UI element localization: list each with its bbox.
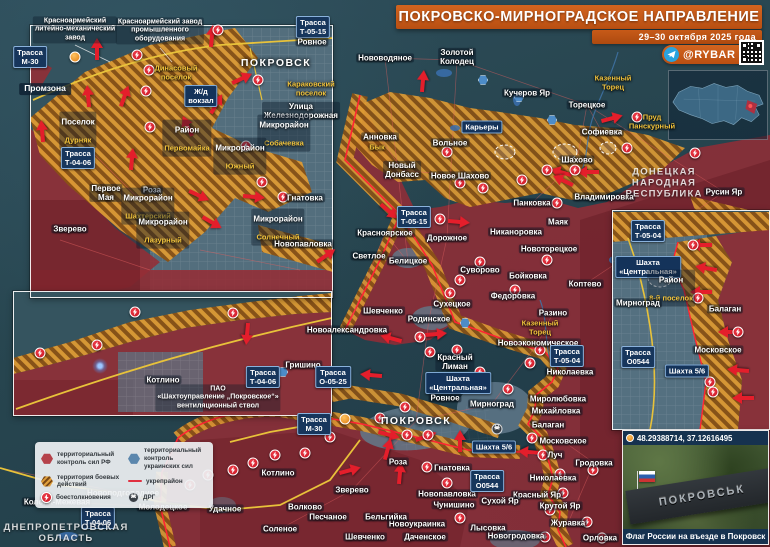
legend-hexred-icon	[41, 453, 53, 464]
legend-item-label: боестолкновения	[56, 494, 111, 502]
clash-icon	[35, 348, 46, 359]
map-label-town: Светлое	[350, 251, 387, 260]
legend-hatch-icon	[41, 476, 53, 487]
map-label-town: Коптево	[567, 279, 604, 288]
clash-icon	[402, 430, 413, 441]
map-label-town: Красный Яр	[511, 490, 563, 499]
coordinates: 48.29388714, 37.12616495	[637, 434, 732, 443]
ua-control-icon	[278, 367, 288, 377]
map-label-town: Нововодяное	[356, 53, 414, 62]
clash-icon	[597, 533, 608, 544]
clash-icon	[241, 141, 252, 152]
legend-item-label: ДРГ	[143, 494, 155, 502]
clash-icon	[423, 430, 434, 441]
clash-icon	[558, 488, 569, 499]
clash-icon	[622, 143, 633, 154]
clash-icon	[132, 50, 143, 61]
legend-item-label: территориальный контроль сил РФ	[57, 451, 120, 467]
map-label-town: Новопавловка	[272, 239, 334, 248]
strike-glow-icon	[92, 358, 108, 374]
coords-bar: 48.29388714, 37.12616495	[623, 431, 768, 445]
map-label-town: Зверево	[51, 224, 88, 233]
map-label-town: Новоукраинка	[387, 519, 447, 528]
legend-item: территория боевых действий	[41, 474, 120, 490]
map-label-town: Даченское	[402, 532, 448, 541]
map-label-town: Родинское	[406, 314, 452, 323]
map-label-town: Балаган	[530, 420, 566, 429]
clash-icon	[552, 198, 563, 209]
map-label-town: Михайловка	[530, 406, 583, 415]
clash-icon	[688, 240, 699, 251]
map-label-water: Казенный Торец	[595, 74, 632, 91]
clash-icon	[555, 469, 566, 480]
clash-icon	[690, 148, 701, 159]
attack-arrow	[243, 190, 268, 204]
clash-icon	[442, 478, 453, 489]
map-label-town: Новогродовка	[486, 531, 547, 540]
photo-inset: 48.29388714, 37.12616495 ПОКРОВСЬК Флаг …	[622, 430, 769, 545]
legend-item: ☠ДРГ	[128, 492, 207, 503]
clash-icon	[570, 165, 581, 176]
legend-item-label: укрепрайон	[146, 478, 183, 486]
attack-arrow	[125, 146, 139, 171]
map-label-badge: Карьеры	[461, 121, 502, 134]
map-label-town: Шевченко	[343, 532, 387, 541]
attack-arrow	[416, 68, 430, 93]
attack-arrow	[393, 460, 407, 485]
map-label-town: Лысовка	[468, 523, 507, 532]
clash-icon	[525, 358, 536, 369]
attack-arrow	[454, 428, 466, 452]
map-title-banner: ПОКРОВСКО-МИРНОГРАДСКОЕ НАПРАВЛЕНИЕ	[396, 5, 762, 29]
attack-arrow	[600, 109, 626, 127]
legend-clash-icon	[41, 492, 52, 503]
clash-icon	[582, 517, 593, 528]
clash-icon	[375, 413, 386, 424]
map-label-region: ДНЕПРОПЕТРОВСКАЯ ОБЛАСТЬ	[3, 523, 128, 545]
clash-icon	[213, 25, 224, 36]
map-label-town: Ровное	[295, 37, 328, 46]
attack-arrow	[176, 112, 197, 139]
clash-icon	[248, 458, 259, 469]
map-label-badge: Шахта «Центральная»	[615, 256, 681, 278]
map-label-plant: ПАО «Шахтоуправление „Покровское“» венти…	[155, 384, 280, 411]
attack-arrow	[377, 200, 403, 225]
clash-icon	[300, 448, 311, 459]
map-label-town: Софиевка	[580, 127, 624, 136]
map-label-district: МикрорайонЛазурный	[136, 212, 189, 249]
clash-icon	[400, 402, 411, 413]
map-label-town: Мирноград	[468, 399, 516, 408]
map-label-town: Разино	[537, 308, 569, 317]
clash-icon	[588, 465, 599, 476]
clash-icon	[542, 255, 553, 266]
clash-icon	[478, 183, 489, 194]
railway-station-icon	[187, 91, 199, 103]
rybar-badge[interactable]: @RYBAR	[662, 45, 743, 64]
clash-icon	[475, 257, 486, 268]
clash-icon	[422, 462, 433, 473]
clash-icon	[733, 327, 744, 338]
attack-arrow	[115, 82, 134, 109]
map-label-town: Бойковка	[507, 271, 549, 280]
map-label-town: Соленое	[261, 524, 299, 533]
clash-icon	[452, 345, 463, 356]
map-label-town: Кучеров Яр	[502, 88, 552, 97]
map-label-town: Чунишино	[431, 500, 476, 509]
map-label-road: Трасса Т-05-04	[631, 220, 665, 242]
attack-arrow	[725, 363, 750, 377]
map-label-badge: Шахта 5/6	[665, 365, 709, 378]
legend-item: территориальный контроль сил РФ	[41, 447, 120, 471]
legend-item: боестолкновения	[41, 492, 120, 503]
map-label-town: Московское	[692, 345, 743, 354]
clash-icon	[325, 432, 336, 443]
ua-control-icon	[460, 318, 470, 328]
clash-icon	[278, 192, 289, 203]
map-label-town: Роза	[141, 185, 163, 194]
clash-icon	[542, 165, 553, 176]
map-label-town: Русин Яр	[704, 187, 745, 196]
map-label-town: Красный Лиман	[435, 353, 474, 371]
map-label-road: Трасса О0544	[470, 470, 504, 492]
map-label-town: Никаноровка	[488, 227, 544, 236]
attack-arrow	[358, 368, 383, 382]
map-label-town: Золотой Колодец	[438, 48, 476, 66]
clash-icon	[517, 175, 528, 186]
city-sign-text: ПОКРОВСЬК	[658, 483, 746, 508]
photo: ПОКРОВСЬК	[623, 445, 768, 529]
attack-arrow	[187, 185, 214, 206]
clash-icon	[535, 345, 546, 356]
clash-icon	[503, 384, 514, 395]
attack-arrow	[377, 329, 403, 347]
attack-arrow	[91, 36, 103, 60]
attack-arrow	[730, 392, 754, 404]
clash-icon	[23, 48, 34, 59]
photo-caption: Флаг России на въезде в Покровск	[626, 532, 766, 541]
clash-icon	[475, 367, 486, 378]
map-label-town: Вольное	[431, 138, 470, 147]
ua-control-icon	[547, 115, 557, 125]
russian-flag	[639, 471, 655, 482]
map-label-road: Трасса Т-04-06	[246, 366, 280, 388]
map-legend: территориальный контроль сил РФтерритори…	[35, 442, 213, 508]
map-label-town: Ровное	[428, 393, 461, 402]
geo-pin-icon	[626, 434, 634, 442]
attack-arrow	[206, 90, 228, 117]
map-title: ПОКРОВСКО-МИРНОГРАДСКОЕ НАПРАВЛЕНИЕ	[399, 9, 760, 25]
clash-icon	[425, 347, 436, 358]
map-label-city: ПОКРОВСК	[381, 415, 451, 427]
map-label-town: Торецкое	[567, 100, 608, 109]
map-label-town: Новопавловка	[416, 489, 478, 498]
clash-icon	[257, 177, 268, 188]
clash-icon	[455, 513, 466, 524]
clash-icon	[145, 122, 156, 133]
map-label-town: Шевченко	[361, 306, 405, 315]
map-label-town: Сухецкое	[431, 299, 472, 308]
clash-icon	[510, 285, 521, 296]
clash-icon	[144, 65, 155, 76]
clash-icon	[527, 433, 538, 444]
map-label-town: Гнатовка	[432, 463, 472, 472]
map-label-town: Панковка	[511, 198, 552, 207]
map-label-water: Бык	[369, 144, 385, 153]
ua-control-icon	[514, 92, 524, 102]
qr-code	[739, 40, 764, 65]
map-label-plant: Красноармейский завод промышленного обор…	[116, 17, 204, 44]
attack-arrow	[81, 83, 95, 108]
marker-pin-icon	[340, 414, 351, 425]
attack-arrow	[338, 461, 364, 479]
map-label-district: МикрорайонСолнечный	[251, 209, 304, 246]
map-label-road: Трасса Т-04-06	[61, 147, 95, 169]
clash-icon	[632, 112, 643, 123]
clash-icon	[141, 86, 152, 97]
legend-lred-icon	[128, 480, 142, 482]
rybar-handle: @RYBAR	[683, 49, 735, 61]
clash-icon	[540, 532, 551, 543]
attack-arrow	[314, 243, 341, 267]
map-label-town: Белицкое	[387, 256, 429, 265]
clash-icon	[435, 214, 446, 225]
map-label-town: Московское	[537, 436, 588, 445]
clash-icon	[92, 340, 103, 351]
legend-item-label: территориальный контроль украинских сил	[144, 447, 207, 471]
clash-icon	[228, 465, 239, 476]
map-label-town: Гнатовка	[285, 193, 325, 202]
map-label-town: Николаевка	[545, 367, 596, 376]
attack-arrow	[516, 445, 541, 459]
map-label-road: Трасса О0544	[621, 346, 655, 368]
map-label-town: Котлино	[259, 468, 296, 477]
map-label-town: Миролюбовка	[528, 394, 588, 403]
attack-arrow	[448, 215, 473, 229]
map-date-banner: 29–30 октября 2025 года	[592, 30, 762, 44]
map-label-road: Трасса Т-05-04	[550, 345, 584, 367]
clash-icon	[455, 178, 466, 189]
map-label-district: ПоселокДурняк	[59, 112, 96, 149]
map-label-town: Песчаное	[307, 512, 349, 521]
clash-icon	[693, 293, 704, 304]
map-label-town: Зверево	[333, 485, 370, 494]
map-label-road: Трасса Т-05-15	[296, 16, 330, 38]
legend-item-label: территория боевых действий	[57, 474, 120, 490]
map-label-town: Гришино	[283, 360, 322, 369]
map-label-town: Котлино	[144, 375, 181, 384]
clash-icon	[445, 288, 456, 299]
map-label-water: Динасовый поселок	[154, 64, 197, 81]
map-label-town: Новый Донбасс	[383, 161, 421, 179]
map-label-town: Николаевка	[528, 473, 579, 482]
attack-arrow	[240, 323, 254, 348]
legend-item: территориальный контроль украинских сил	[128, 447, 207, 471]
legend-hexblue-icon	[128, 453, 140, 464]
map-label-town: Владимировка	[572, 192, 635, 201]
clash-icon	[415, 332, 426, 343]
map-label-plant: Красноармейский литейно-механический зав…	[33, 16, 117, 43]
photo-caption-bar: Флаг России на въезде в Покровск	[623, 529, 768, 544]
map-label-area: Промзона	[19, 83, 71, 95]
map-label-road: Трасса Т-05-15	[397, 206, 431, 228]
telegram-icon	[664, 47, 679, 62]
map-label-town: Балаган	[707, 304, 743, 313]
drg-icon: ☠	[492, 424, 503, 435]
ua-control-icon	[478, 75, 488, 85]
map-label-town: Новоалександровка	[305, 325, 389, 334]
war-map: ПОКРОВСКО-МИРНОГРАДСКОЕ НАПРАВЛЕНИЕ 29–3…	[0, 0, 770, 547]
clash-icon	[228, 308, 239, 319]
map-label-road: Трасса Т-04-06	[81, 507, 115, 529]
map-label-town: Волково	[286, 502, 324, 511]
clash-icon	[130, 307, 141, 318]
map-label-town: Новоторецкое	[519, 244, 579, 253]
clash-icon	[442, 147, 453, 158]
map-label-badge: Шахта 5/6	[472, 441, 516, 454]
clash-icon	[270, 450, 281, 461]
map-label-town: Мирноград	[614, 298, 662, 307]
map-label-district: МикрорайонСобачевка	[257, 115, 310, 152]
map-label-town: Анновка	[361, 132, 399, 141]
map-label-town: Первое Мая	[89, 184, 122, 202]
attack-arrow	[200, 212, 227, 234]
map-label-region: ДОНЕЦКАЯ НАРОДНАЯ РЕСПУБЛИКА	[625, 168, 702, 201]
map-label-town: Бельгийка	[363, 512, 409, 521]
attack-arrow	[35, 118, 49, 143]
map-label-town: Маяк	[546, 217, 570, 226]
clash-icon	[538, 450, 549, 461]
clash-icon	[545, 505, 556, 516]
legend-drgi-icon: ☠	[128, 492, 139, 503]
clash-icon	[253, 75, 264, 86]
map-label-town: Красноярское	[355, 228, 415, 237]
clash-icon	[455, 275, 466, 286]
map-label-town: Улица Железнодорожная	[262, 102, 340, 120]
clash-icon	[708, 387, 719, 398]
legend-item: укрепрайон	[128, 474, 207, 490]
map-label-town: Шахово	[559, 155, 594, 164]
marker-pin-icon	[70, 52, 81, 63]
map-label-water: Казенный Торец	[522, 319, 559, 336]
attack-arrow	[692, 260, 718, 276]
map-label-water: Караковский поселок	[287, 80, 334, 97]
map-label-town: Дорожное	[425, 233, 469, 242]
attack-arrow	[425, 327, 450, 341]
map-label-district: МикрорайонШахтерский	[121, 188, 174, 225]
map-label-town: Сухой Яр	[479, 496, 520, 505]
map-label-road: Трасса О-05-25	[315, 366, 351, 388]
